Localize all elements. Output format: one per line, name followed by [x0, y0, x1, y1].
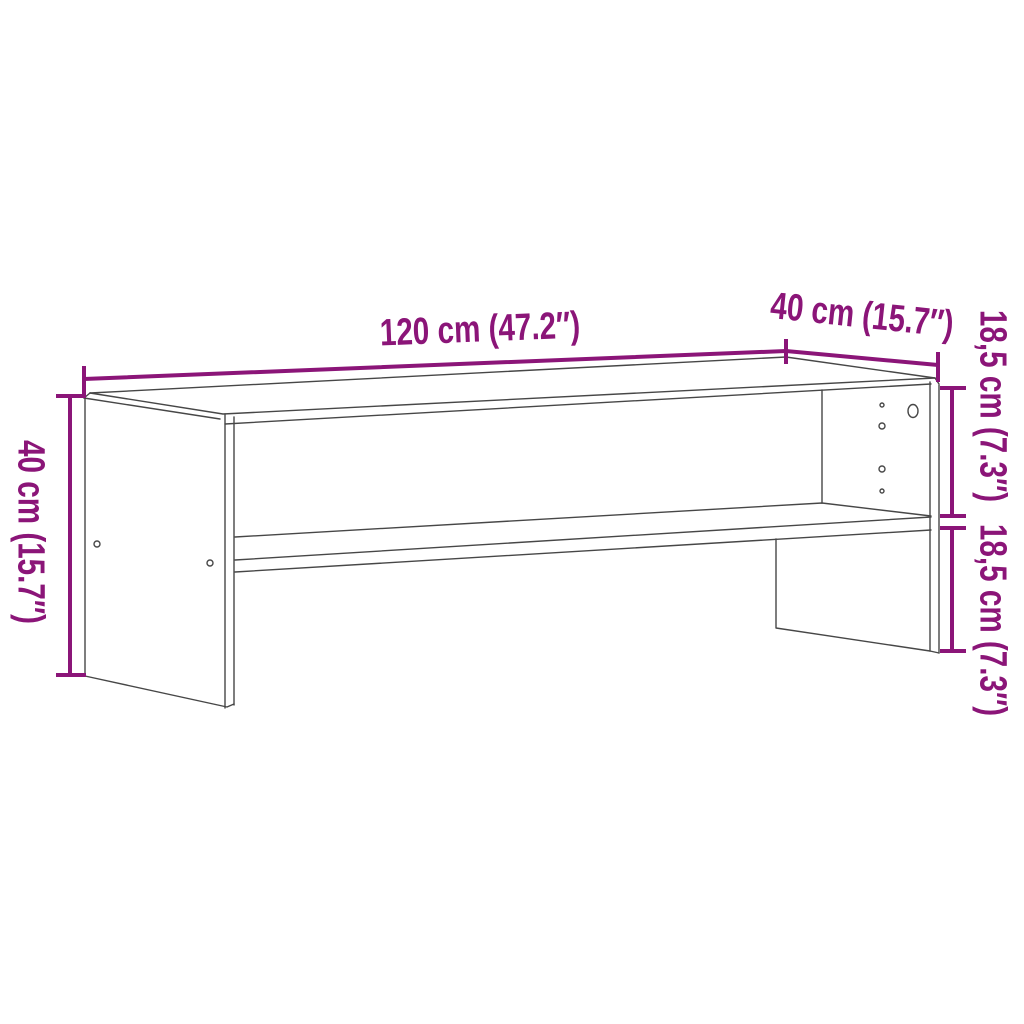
- shelf-lines: [235, 503, 931, 537]
- upper-section-dimension-label: 18,5 cm (7.3″): [971, 310, 1014, 502]
- width-dimension-label: 120 cm (47.2″): [379, 304, 581, 355]
- drill-holes: [94, 403, 918, 566]
- cam-lock-hole-icon: [908, 405, 918, 418]
- right-panel-hole-icon: [879, 423, 885, 429]
- right-leg-lines: [776, 539, 930, 651]
- left-panel-lines: [85, 397, 234, 707]
- width-dimension-line: [84, 351, 938, 379]
- right-panel-hole-icon: [880, 403, 884, 407]
- left-panel-hole-icon: [94, 541, 100, 547]
- furniture-outline: [84, 357, 939, 708]
- height-dimension-label: 40 cm (15.7″): [9, 440, 52, 624]
- lower-section-dimension-label: 18,5 cm (7.3″): [971, 524, 1014, 716]
- right-panel-hole-icon: [880, 489, 884, 493]
- diagram-canvas: 120 cm (47.2″) 40 cm (15.7″) 40 cm (15.7…: [0, 0, 1024, 1024]
- right-panel-hole-icon: [879, 466, 885, 472]
- left-panel-hole-icon: [207, 560, 213, 566]
- furniture-line-drawing: [0, 0, 1024, 1024]
